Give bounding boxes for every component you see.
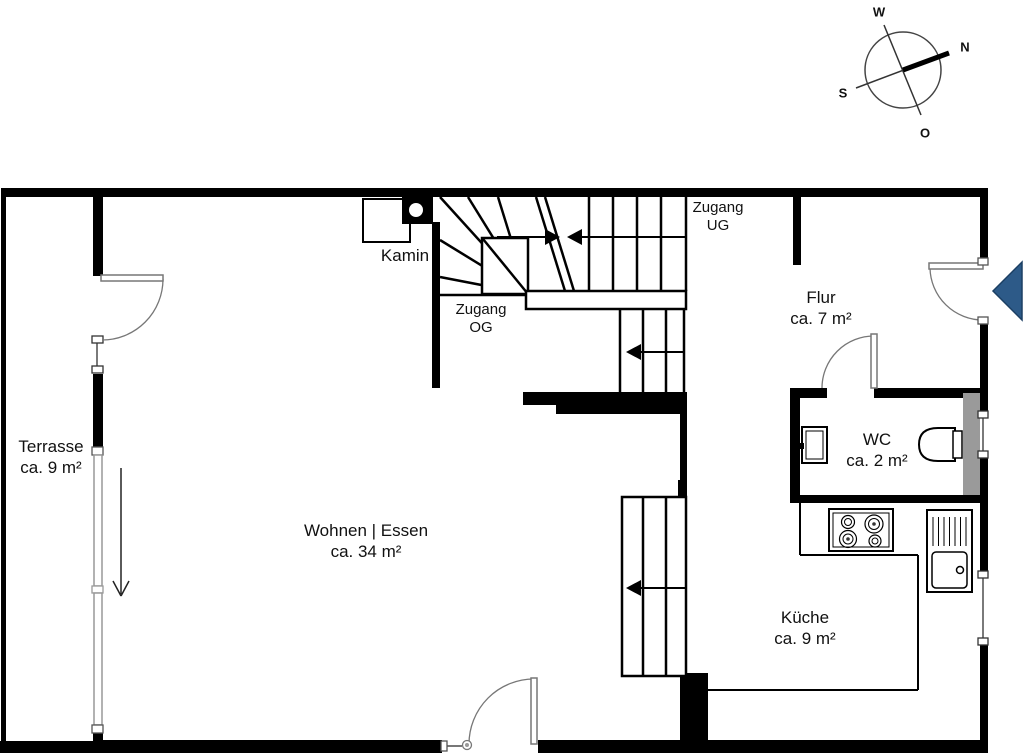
room-label-terrasse: Terrasse ca. 9 m² [18, 436, 83, 478]
stair-access-og-line2: OG [456, 319, 507, 337]
room-area: ca. 7 m² [790, 308, 851, 329]
walkline-arrow-left-icon [567, 229, 582, 245]
stair-landing [526, 291, 686, 309]
door-cap [978, 258, 988, 265]
wall-top [1, 188, 988, 197]
window-cap [978, 638, 988, 645]
wall-terrace-living-upper [93, 197, 103, 276]
door-cap [441, 741, 447, 751]
stair-access-og-label: Zugang OG [456, 301, 507, 337]
wall-right-2 [980, 318, 988, 413]
wall-wc-top-left [793, 388, 827, 398]
wall-wc-kitchen [790, 495, 983, 503]
room-label-wohnen-essen: Wohnen | Essen ca. 34 m² [304, 520, 428, 562]
window-cap [978, 411, 988, 418]
room-name: Terrasse [18, 436, 83, 457]
stair-access-ug-line1: Zugang [693, 199, 744, 217]
wall-right-3 [980, 458, 988, 573]
compass-label-east: O [920, 126, 930, 141]
stove [829, 509, 893, 551]
wall-understair-thick [556, 392, 687, 414]
wall-flur-left [793, 197, 801, 265]
room-label-flur: Flur ca. 7 m² [790, 287, 851, 329]
fireplace-flue-pipe [409, 203, 423, 217]
window-cap [92, 366, 103, 373]
room-area: ca. 2 m² [846, 450, 907, 471]
room-area: ca. 9 m² [774, 628, 835, 649]
wall-stair-bottom-block [680, 673, 708, 753]
stair-access-og-line1: Zugang [456, 301, 507, 319]
fireplace-label: Kamin [381, 245, 429, 266]
window-cap [978, 451, 988, 458]
wall-stair-left [432, 222, 440, 388]
windows [92, 336, 988, 645]
room-name: Flur [790, 287, 851, 308]
glass-panel [94, 455, 102, 586]
room-name: Wohnen | Essen [304, 520, 428, 541]
wall-terrace-living-mid [93, 374, 103, 448]
fireplace [363, 197, 433, 242]
floorplan-drawing [0, 0, 1024, 753]
wall-understair-thin [523, 392, 558, 405]
kitchen [708, 503, 972, 690]
room-area: ca. 34 m² [304, 541, 428, 562]
door-cap [978, 317, 988, 324]
floorplan-page: Kamin Zugang OG Zugang UG Flur ca. 7 m² … [0, 0, 1024, 753]
wc-door-leaf [871, 334, 877, 388]
wall-bottom-right [538, 740, 988, 753]
staircase [437, 197, 686, 676]
stair-access-ug-line2: UG [693, 217, 744, 235]
terrace-door-swing [102, 279, 163, 340]
washbasin-tap-icon [799, 443, 804, 449]
walkline-arrow-left-icon [626, 344, 641, 360]
glass-cap [92, 725, 103, 733]
compass-rose [856, 25, 949, 115]
wall-right-4 [980, 645, 988, 753]
room-label-wc: WC ca. 2 m² [846, 429, 907, 471]
wall-left-outer [1, 188, 6, 753]
terrace-glass-front [92, 447, 129, 733]
toilet-cistern [953, 431, 962, 458]
room-name: WC [846, 429, 907, 450]
compass-north-pointer-icon [903, 53, 949, 70]
wc-door-swing [822, 336, 874, 388]
door-hinge-icon [465, 743, 469, 747]
wall-right-1 [980, 188, 988, 265]
window-cap [92, 336, 103, 343]
shaft [963, 393, 980, 495]
doors [101, 258, 988, 751]
compass-label-north: N [960, 40, 969, 55]
toilet [919, 428, 955, 461]
glass-joint [92, 586, 103, 593]
stair-access-ug-label: Zugang UG [693, 199, 744, 235]
room-label-kueche: Küche ca. 9 m² [774, 607, 835, 649]
room-name: Küche [774, 607, 835, 628]
window-cap [978, 571, 988, 578]
slide-direction-arrow-icon [113, 468, 129, 596]
glass-cap [92, 447, 103, 455]
room-area: ca. 9 m² [18, 457, 83, 478]
glass-panel [94, 593, 102, 725]
garden-door-swing [469, 679, 534, 744]
wall-stair-stub [678, 480, 687, 497]
wall-terrace-bottom [0, 741, 94, 753]
entrance-door-swing [930, 268, 983, 320]
entrance-door-leaf [929, 263, 983, 269]
entrance-arrow-icon [993, 262, 1022, 320]
garden-door-leaf [531, 678, 537, 744]
terrace-door-leaf [101, 275, 163, 281]
wall-wc-left [790, 388, 800, 503]
stair-cut-gap [536, 197, 574, 291]
compass-label-west: W [873, 5, 885, 20]
compass-label-south: S [839, 86, 848, 101]
wall-bottom-left [103, 740, 442, 753]
wall-stair-right-lower [680, 414, 687, 480]
